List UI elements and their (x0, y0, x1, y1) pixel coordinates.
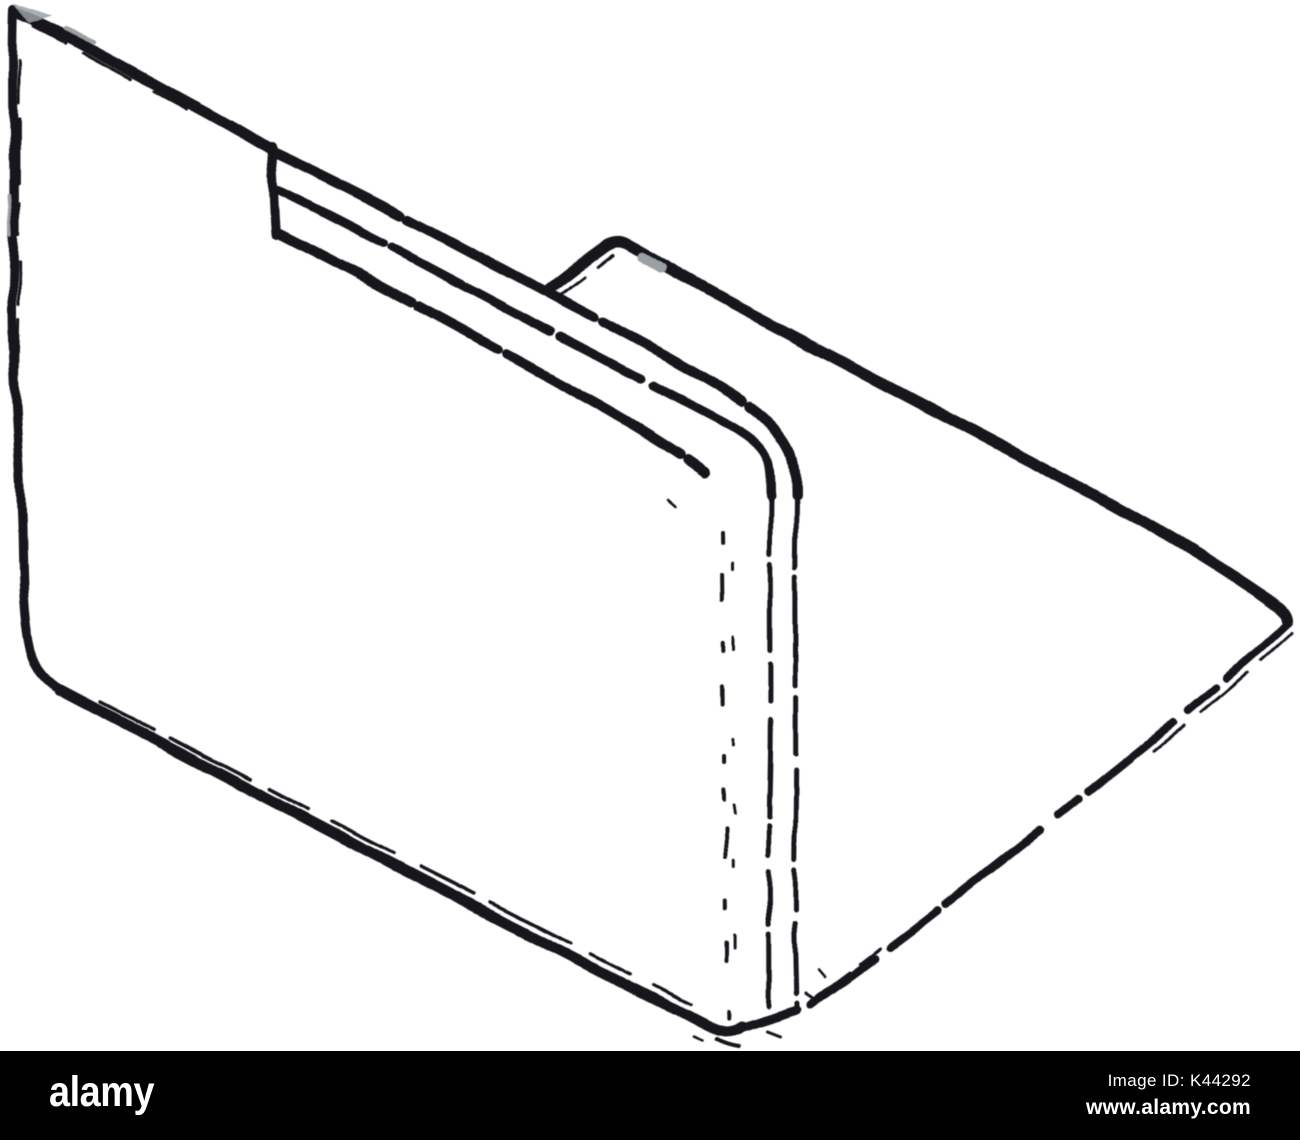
paper-middle-top-edge (277, 189, 771, 497)
front-cover-bottom-edge (60, 690, 740, 1032)
stray-tick (716, 1040, 738, 1047)
back-cover-tab-and-top-edge (546, 242, 1287, 622)
stray-tick (806, 994, 815, 1000)
paper-back-right-edge (795, 498, 797, 1007)
illustration-stage (0, 0, 1300, 1051)
image-id-text: Image ID: K44292 (1086, 1072, 1251, 1089)
spine-line-1 (722, 534, 727, 1024)
spine-line-2 (733, 562, 735, 1012)
stray-tick (766, 1031, 779, 1036)
edge-smudge (9, 195, 11, 235)
front-cover-top-edge (17, 13, 271, 149)
paper-middle-right-edge (769, 499, 771, 1006)
folder-back-cover (546, 242, 1291, 1030)
paper-sheets (276, 153, 797, 1024)
front-cover-top-edge-echo (34, 27, 195, 113)
alamy-logo: alamy (49, 1071, 154, 1114)
back-cover-right-edge-echo-2 (804, 948, 880, 1006)
watermark-footer-bar: alamy Image ID: K44292 www.alamy.com (0, 1051, 1300, 1140)
footer-right-block: Image ID: K44292 www.alamy.com (1086, 1072, 1251, 1118)
back-cover-bottom-edge (733, 1010, 797, 1030)
front-cover-left-edge (12, 9, 62, 691)
stray-tick (693, 1037, 702, 1041)
stray-tick (818, 970, 824, 977)
folder-front-cover (12, 9, 740, 1032)
website-text: www.alamy.com (1086, 1097, 1251, 1118)
paper-front-top-edge (279, 233, 705, 472)
folder-sketch-illustration (0, 0, 1300, 1051)
sketch-stray-marks (668, 500, 824, 1047)
stray-tick (668, 500, 676, 507)
stock-image-page: alamy Image ID: K44292 www.alamy.com (0, 0, 1300, 1140)
front-cover-bottom-edge-echo (100, 702, 690, 1004)
sketch-smudges (9, 3, 663, 269)
back-cover-right-edge-echo (1150, 634, 1291, 754)
